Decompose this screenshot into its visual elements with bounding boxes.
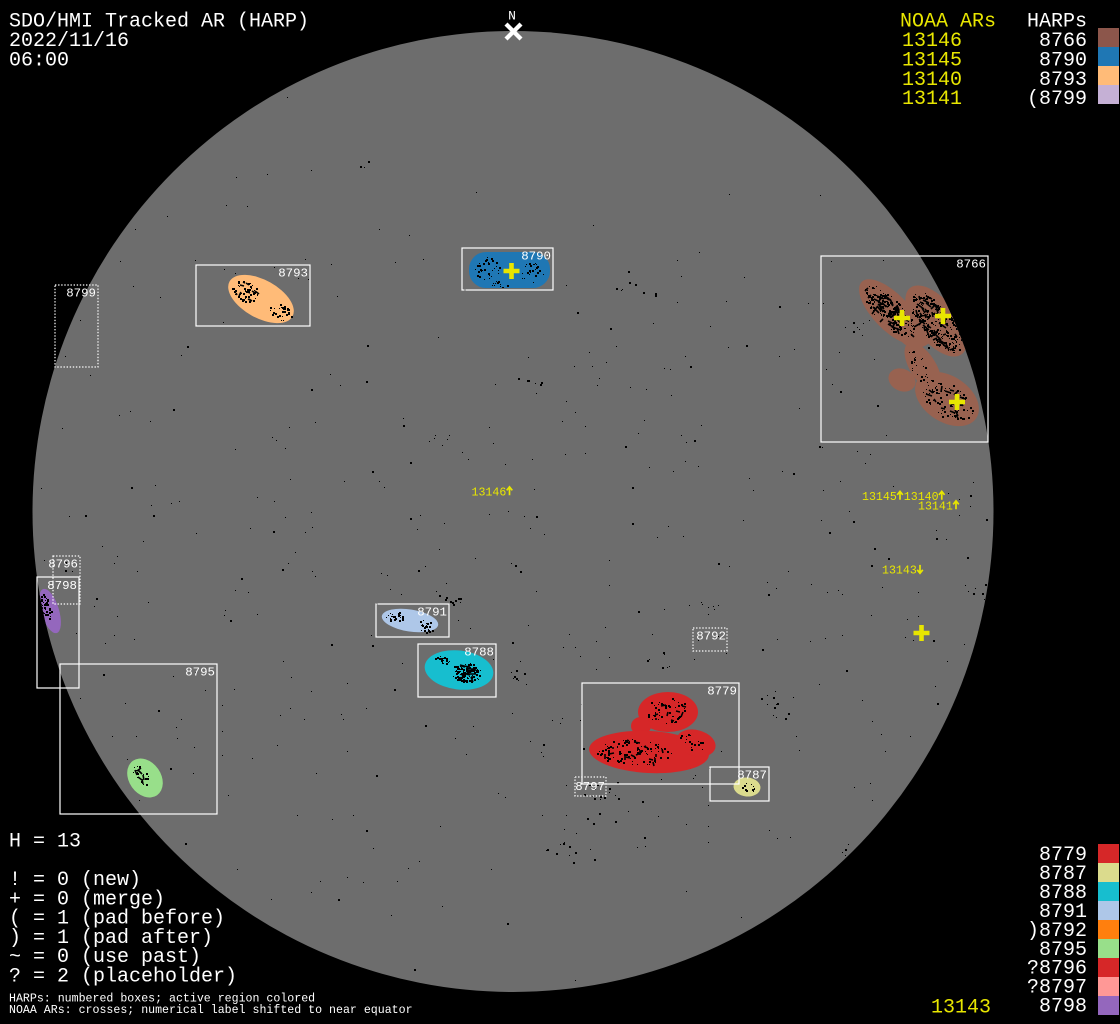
svg-text:8790: 8790 <box>521 250 551 264</box>
svg-text:8766: 8766 <box>956 258 986 272</box>
svg-text:8798: 8798 <box>47 579 77 593</box>
svg-text:13141: 13141 <box>918 501 953 514</box>
svg-text:8791: 8791 <box>417 606 447 620</box>
svg-text:8788: 8788 <box>464 646 494 660</box>
svg-text:8795: 8795 <box>185 666 215 680</box>
svg-text:8787: 8787 <box>737 769 767 783</box>
svg-text:06:00: 06:00 <box>9 50 69 73</box>
svg-text:8798: 8798 <box>1039 996 1087 1019</box>
svg-text:H = 13: H = 13 <box>9 831 81 854</box>
svg-text:13145: 13145 <box>862 491 897 504</box>
svg-text:NOAA ARs: crosses; numerical l: NOAA ARs: crosses; numerical label shift… <box>9 1004 413 1017</box>
svg-text:8797: 8797 <box>575 780 605 794</box>
svg-text:13143: 13143 <box>882 565 917 578</box>
svg-text:8779: 8779 <box>707 685 737 699</box>
svg-text:? = 2 (placeholder): ? = 2 (placeholder) <box>9 966 237 989</box>
svg-text:8793: 8793 <box>278 267 308 281</box>
svg-text:N: N <box>508 9 516 24</box>
svg-text:8796: 8796 <box>48 558 78 572</box>
svg-text:13141: 13141 <box>902 88 962 111</box>
svg-text:8792: 8792 <box>696 630 726 644</box>
svg-text:13146: 13146 <box>472 487 507 500</box>
svg-text:(8799: (8799 <box>1027 88 1087 111</box>
svg-text:13143: 13143 <box>931 997 991 1020</box>
svg-text:8799: 8799 <box>66 287 96 301</box>
